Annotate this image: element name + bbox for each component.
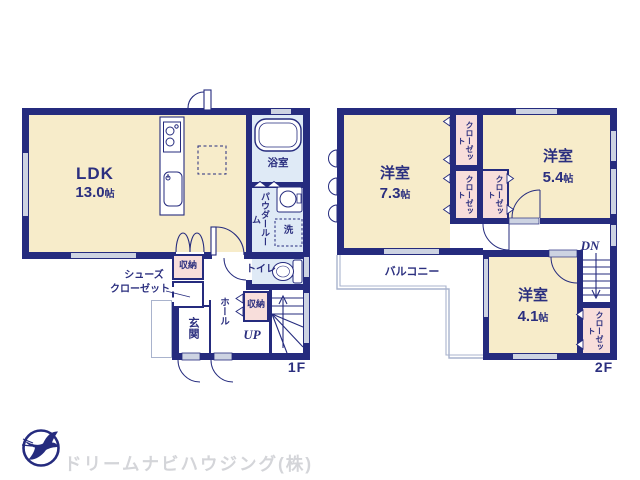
room-west-name: 洋室 (375, 166, 415, 183)
stairs-down-icon (583, 253, 610, 298)
window (610, 224, 617, 247)
room-south-size-unit: 帖 (538, 313, 548, 324)
room-south-name: 洋室 (513, 288, 553, 305)
entrance-step-line (209, 300, 211, 353)
floor1-label: 1F (284, 360, 310, 375)
company-logo-icon (22, 431, 59, 466)
room-east-size: 5.4帖 (534, 169, 582, 187)
stairs-up-label: UP (238, 328, 266, 342)
ldk-size: 13.0帖 (55, 184, 135, 202)
wall (246, 182, 303, 188)
window (515, 108, 558, 115)
room-east-size-unit: 帖 (563, 174, 573, 185)
storage-b-label: 収納 (245, 300, 267, 310)
wall (450, 218, 509, 224)
room-south-size: 4.1帖 (509, 308, 557, 326)
company-name: ドリームナビハウジング(株) (64, 451, 313, 476)
window (70, 252, 137, 259)
window (610, 130, 617, 162)
room-west-size: 7.3帖 (371, 185, 419, 203)
closet-d-label: クローゼット (590, 310, 603, 352)
wall (540, 218, 610, 224)
wall-vent-icon (329, 150, 338, 222)
window (483, 258, 489, 318)
room-west-size-value: 7.3 (380, 185, 401, 202)
window (383, 248, 440, 255)
entrance-label: 玄関 (184, 313, 198, 343)
powder-label: パウダールーム (256, 188, 269, 250)
wall (246, 284, 310, 290)
window (22, 152, 29, 217)
room-west-door-icon (483, 224, 509, 250)
closet-a-label: クローゼット (460, 117, 473, 164)
balcony-label: バルコニー (382, 266, 442, 278)
wall (337, 108, 344, 255)
room-south-4-1 (489, 257, 577, 353)
porch-outline (151, 300, 172, 358)
shoes-closet-box (172, 281, 204, 308)
floorplan-canvas: LDK 13.0帖 浴室 パウダールーム 洗 トイレ 収納 収納 シューズ クロ… (0, 0, 640, 480)
hall-label: ホール (215, 291, 228, 331)
window (303, 292, 310, 344)
ldk-size-unit: 帖 (105, 189, 115, 200)
room-bath (252, 115, 303, 182)
room-south-size-value: 4.1 (518, 308, 539, 325)
wall (577, 302, 617, 308)
wall (269, 290, 272, 356)
stairs-down-label: DN (576, 239, 604, 253)
stairs-up-icon (272, 296, 303, 353)
window (512, 353, 558, 360)
floor2-label: 2F (590, 360, 618, 375)
shoes-closet-label-line1: シューズ (118, 270, 170, 281)
window (303, 256, 310, 278)
closet-b-label: クローゼット (460, 173, 473, 217)
wall (483, 250, 549, 257)
folding-door-icon (236, 294, 243, 316)
room-east-name: 洋室 (538, 149, 578, 166)
shoes-closet-label-line2: クローゼット (108, 284, 172, 295)
room-west-size-unit: 帖 (400, 190, 410, 201)
wall (204, 252, 212, 259)
wall (450, 165, 483, 171)
ldk-size-value: 13.0 (75, 184, 104, 201)
toilet-label: トイレ (246, 264, 276, 275)
closet-c-label: クローゼット (490, 173, 503, 217)
wall (244, 252, 310, 259)
bath-label: 浴室 (261, 158, 295, 170)
wall (337, 108, 617, 115)
wall (22, 108, 310, 115)
window (610, 168, 617, 215)
room-east-size-value: 5.4 (543, 169, 564, 186)
toilet-door-icon (224, 258, 246, 280)
ldk-name: LDK (60, 165, 130, 184)
storage-a-label: 収納 (176, 261, 200, 271)
window (270, 108, 292, 115)
laundry-label: 洗 (281, 226, 296, 236)
entry-door-top-icon (188, 90, 211, 110)
